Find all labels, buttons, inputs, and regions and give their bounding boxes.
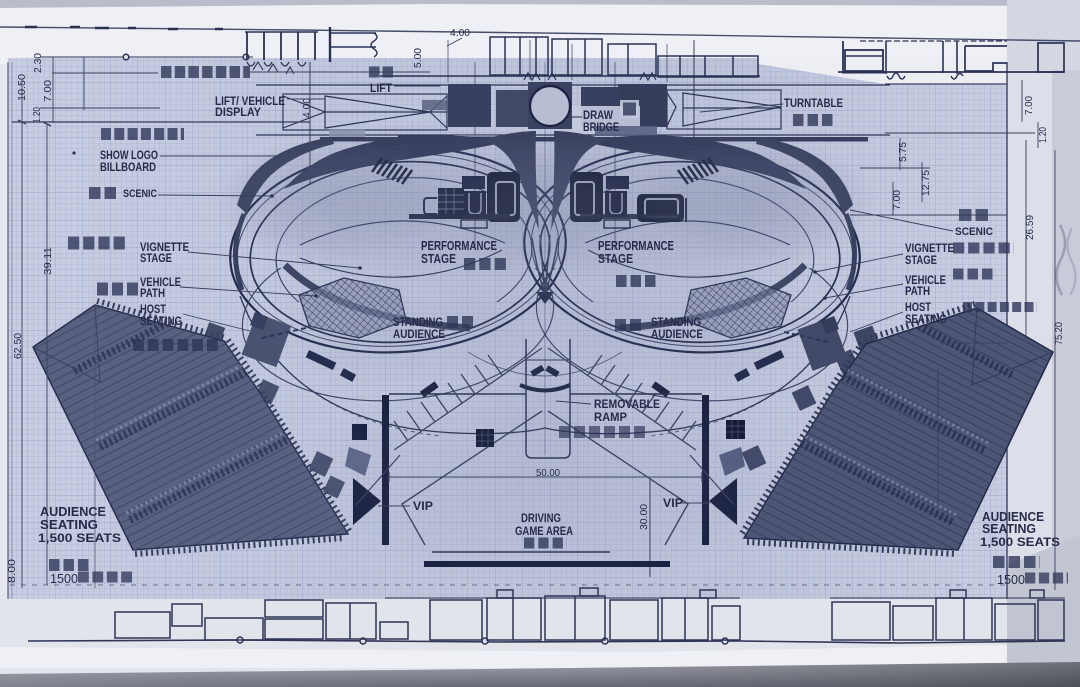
svg-text:STAGE: STAGE (421, 251, 456, 266)
svg-text:REMOVABLE: REMOVABLE (594, 397, 660, 411)
svg-text:1,500 SEATS: 1,500 SEATS (980, 535, 1060, 549)
svg-text:SEATING: SEATING (40, 517, 98, 532)
svg-text:5.00: 5.00 (413, 48, 424, 68)
svg-text:PATH: PATH (140, 286, 165, 300)
svg-text:PATH: PATH (905, 284, 930, 298)
svg-text:10.50: 10.50 (17, 74, 28, 101)
svg-text:7.00: 7.00 (892, 190, 903, 210)
svg-text:1.20: 1.20 (32, 107, 43, 123)
svg-text:39.11: 39.11 (43, 247, 54, 275)
svg-text:LIFT: LIFT (370, 83, 392, 95)
svg-text:VIP: VIP (663, 498, 683, 510)
svg-text:SEATING: SEATING (905, 312, 947, 326)
svg-text:62.50: 62.50 (13, 333, 24, 359)
svg-text:STAGE: STAGE (598, 251, 633, 266)
svg-text:5.75: 5.75 (898, 142, 909, 162)
svg-text:30.00: 30.00 (639, 504, 650, 530)
svg-text:VIP: VIP (413, 501, 433, 513)
svg-text:50.00: 50.00 (536, 468, 560, 479)
svg-text:75.20: 75.20 (1054, 322, 1065, 345)
svg-text:AUDIENCE: AUDIENCE (393, 327, 445, 341)
svg-text:SEATING: SEATING (982, 521, 1036, 536)
svg-text:SEATING: SEATING (140, 314, 182, 328)
svg-text:26.59: 26.59 (1025, 215, 1036, 240)
svg-text:GAME AREA: GAME AREA (515, 524, 573, 538)
svg-text:1500: 1500 (997, 573, 1025, 587)
svg-text:SCENIC: SCENIC (955, 226, 993, 238)
svg-text:STAGE: STAGE (905, 253, 937, 267)
svg-text:BRIDGE: BRIDGE (583, 122, 619, 134)
svg-text:7.00: 7.00 (43, 80, 54, 102)
svg-text:4.00: 4.00 (450, 28, 470, 39)
svg-text:1500: 1500 (50, 572, 78, 586)
svg-text:1.20: 1.20 (1038, 127, 1049, 143)
svg-text:SHOW LOGO: SHOW LOGO (100, 150, 158, 162)
svg-text:4.00: 4.00 (302, 98, 313, 118)
svg-text:2.30: 2.30 (33, 53, 44, 73)
svg-text:DRAW: DRAW (583, 110, 613, 122)
svg-text:7.00: 7.00 (1024, 96, 1035, 115)
svg-text:TURNTABLE: TURNTABLE (784, 96, 843, 110)
svg-text:1,500 SEATS: 1,500 SEATS (38, 531, 121, 545)
svg-text:AUDIENCE: AUDIENCE (651, 327, 703, 341)
svg-text:8.00: 8.00 (7, 558, 18, 583)
svg-text:BILLBOARD: BILLBOARD (100, 162, 156, 174)
svg-text:DRIVING: DRIVING (521, 511, 561, 525)
svg-text:STAGE: STAGE (140, 251, 172, 265)
svg-text:12.75: 12.75 (921, 170, 932, 196)
svg-text:SCENIC: SCENIC (123, 188, 157, 200)
svg-text:RAMP: RAMP (594, 410, 627, 424)
svg-text:DISPLAY: DISPLAY (215, 105, 261, 119)
